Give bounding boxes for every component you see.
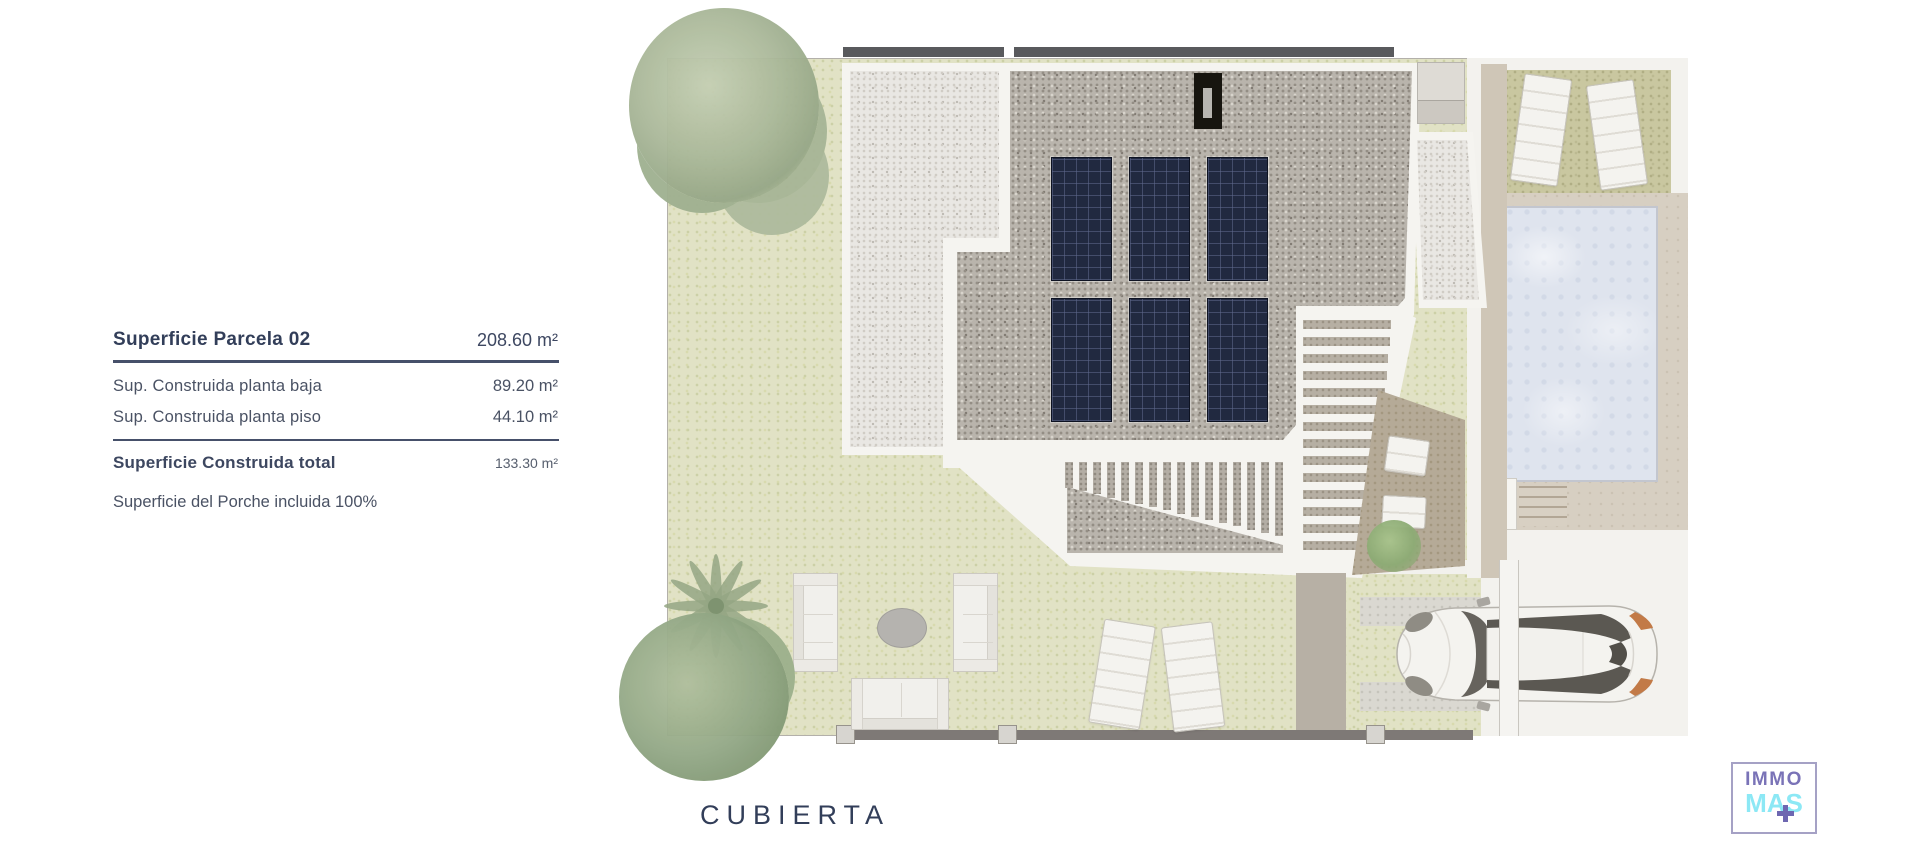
garden-loveseat	[851, 678, 949, 730]
skylight-box	[1417, 62, 1465, 124]
solar-panel	[1051, 157, 1112, 281]
parked-car	[1383, 596, 1668, 712]
pergola-slat	[1303, 439, 1381, 448]
surface-info-panel: Superficie Parcela 02 208.60 m² Sup. Con…	[113, 329, 558, 529]
solar-panel	[1051, 298, 1112, 422]
parcel-title: Superficie Parcela 02	[113, 329, 310, 350]
divider	[113, 439, 559, 441]
porch-note: Superficie del Porche incluida 100%	[113, 493, 377, 512]
pergola-slat	[1233, 462, 1241, 526]
logo-line-mas: MAS	[1733, 788, 1815, 819]
pergola-slat	[1303, 320, 1391, 329]
fence-post	[1366, 725, 1385, 744]
pergola-slat	[1303, 422, 1382, 431]
chimney-flue	[1203, 88, 1212, 118]
carport-wall	[1499, 560, 1519, 736]
pergola-slat	[1303, 337, 1390, 346]
pergola-slat	[1261, 462, 1269, 533]
pergola-slat	[1121, 462, 1129, 501]
pergola-slat	[1303, 456, 1379, 465]
garden-path	[1296, 573, 1346, 736]
terrace-lounger	[1384, 435, 1431, 476]
garden-sofa	[953, 573, 998, 672]
pergola-slat	[1149, 462, 1157, 507]
immomas-logo: IMMO MAS	[1731, 762, 1817, 834]
row-label: Sup. Construida planta baja	[113, 377, 322, 395]
row-value: 44.10 m²	[493, 408, 558, 427]
pergola-slat	[1247, 462, 1255, 530]
parcel-title-row: Superficie Parcela 02 208.60 m²	[113, 329, 558, 351]
pergola-slat	[1107, 462, 1115, 498]
tree	[619, 613, 789, 781]
fence-post	[998, 725, 1017, 744]
pergola-slat	[1065, 462, 1073, 488]
pergola-slat	[1079, 462, 1087, 491]
pergola-slat	[1191, 462, 1199, 517]
row-planta-baja: Sup. Construida planta baja 89.20 m²	[113, 377, 558, 396]
pergola-slat	[1303, 388, 1385, 397]
solar-panel	[1207, 157, 1268, 281]
palm-trunk	[708, 598, 724, 614]
plan-sheet: Superficie Parcela 02 208.60 m² Sup. Con…	[0, 0, 1920, 860]
pergola-slat	[1205, 462, 1213, 520]
site-plan	[667, 58, 1688, 736]
tree	[629, 8, 819, 203]
row-planta-piso: Sup. Construida planta piso 44.10 m²	[113, 408, 558, 427]
row-total: Superficie Construida total 133.30 m²	[113, 453, 558, 473]
pergola-slat	[1093, 462, 1101, 494]
pool-stairs	[1519, 486, 1567, 526]
pergola-slat	[1303, 371, 1387, 380]
skylight-band	[1418, 100, 1464, 123]
pergola-slat	[1303, 405, 1384, 414]
row-value: 89.20 m²	[493, 377, 558, 396]
divider	[113, 360, 559, 363]
pergola-slat	[1135, 462, 1143, 504]
parcel-area-value: 208.60 m²	[477, 330, 558, 351]
parapet-wall	[843, 47, 1004, 57]
side-walkway	[1481, 64, 1507, 578]
pergola-slat	[1177, 462, 1185, 514]
pergola-slat	[1303, 354, 1388, 363]
row-label: Sup. Construida planta piso	[113, 408, 321, 426]
plus-icon	[1777, 805, 1794, 822]
pergola-slat	[1163, 462, 1171, 510]
pergola-slat	[1275, 462, 1283, 536]
total-value: 133.30 m²	[495, 455, 558, 471]
pergola-slat	[1219, 462, 1227, 523]
total-label: Superficie Construida total	[113, 453, 336, 472]
chimney	[1194, 73, 1222, 129]
garden-sofa	[793, 573, 838, 672]
solar-panel	[1207, 298, 1268, 422]
coffee-table	[877, 608, 927, 648]
bush	[1367, 520, 1421, 572]
parapet-wall	[1014, 47, 1394, 57]
swimming-pool	[1505, 206, 1658, 482]
solar-panel	[1129, 298, 1190, 422]
plan-caption: CUBIERTA	[700, 800, 890, 831]
solar-panel	[1129, 157, 1190, 281]
